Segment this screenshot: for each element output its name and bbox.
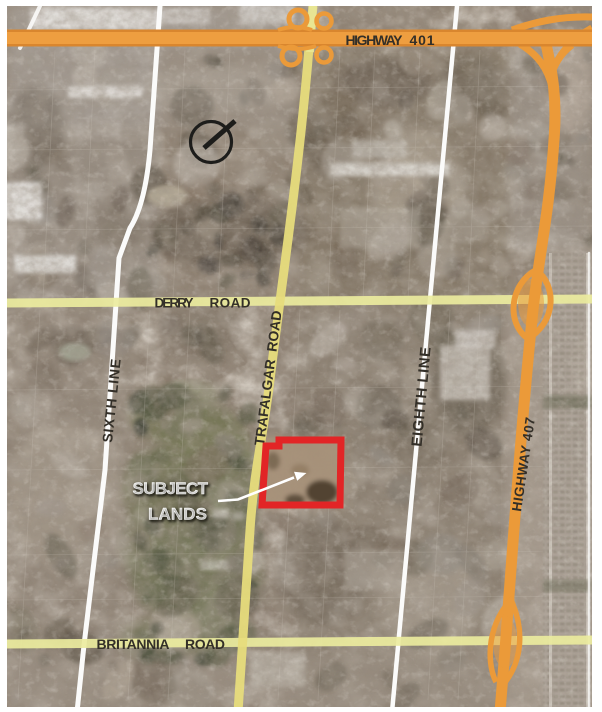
svg-text:DERRY: DERRY <box>155 296 194 311</box>
svg-text:401: 401 <box>410 32 435 48</box>
svg-text:LANDS: LANDS <box>148 505 207 524</box>
svg-text:ROAD: ROAD <box>185 636 225 652</box>
svg-text:ROAD: ROAD <box>210 296 251 311</box>
svg-text:BRITANNIA: BRITANNIA <box>97 636 170 652</box>
svg-text:SUBJECT: SUBJECT <box>133 479 209 498</box>
svg-text:HIGHWAY: HIGHWAY <box>346 32 404 48</box>
